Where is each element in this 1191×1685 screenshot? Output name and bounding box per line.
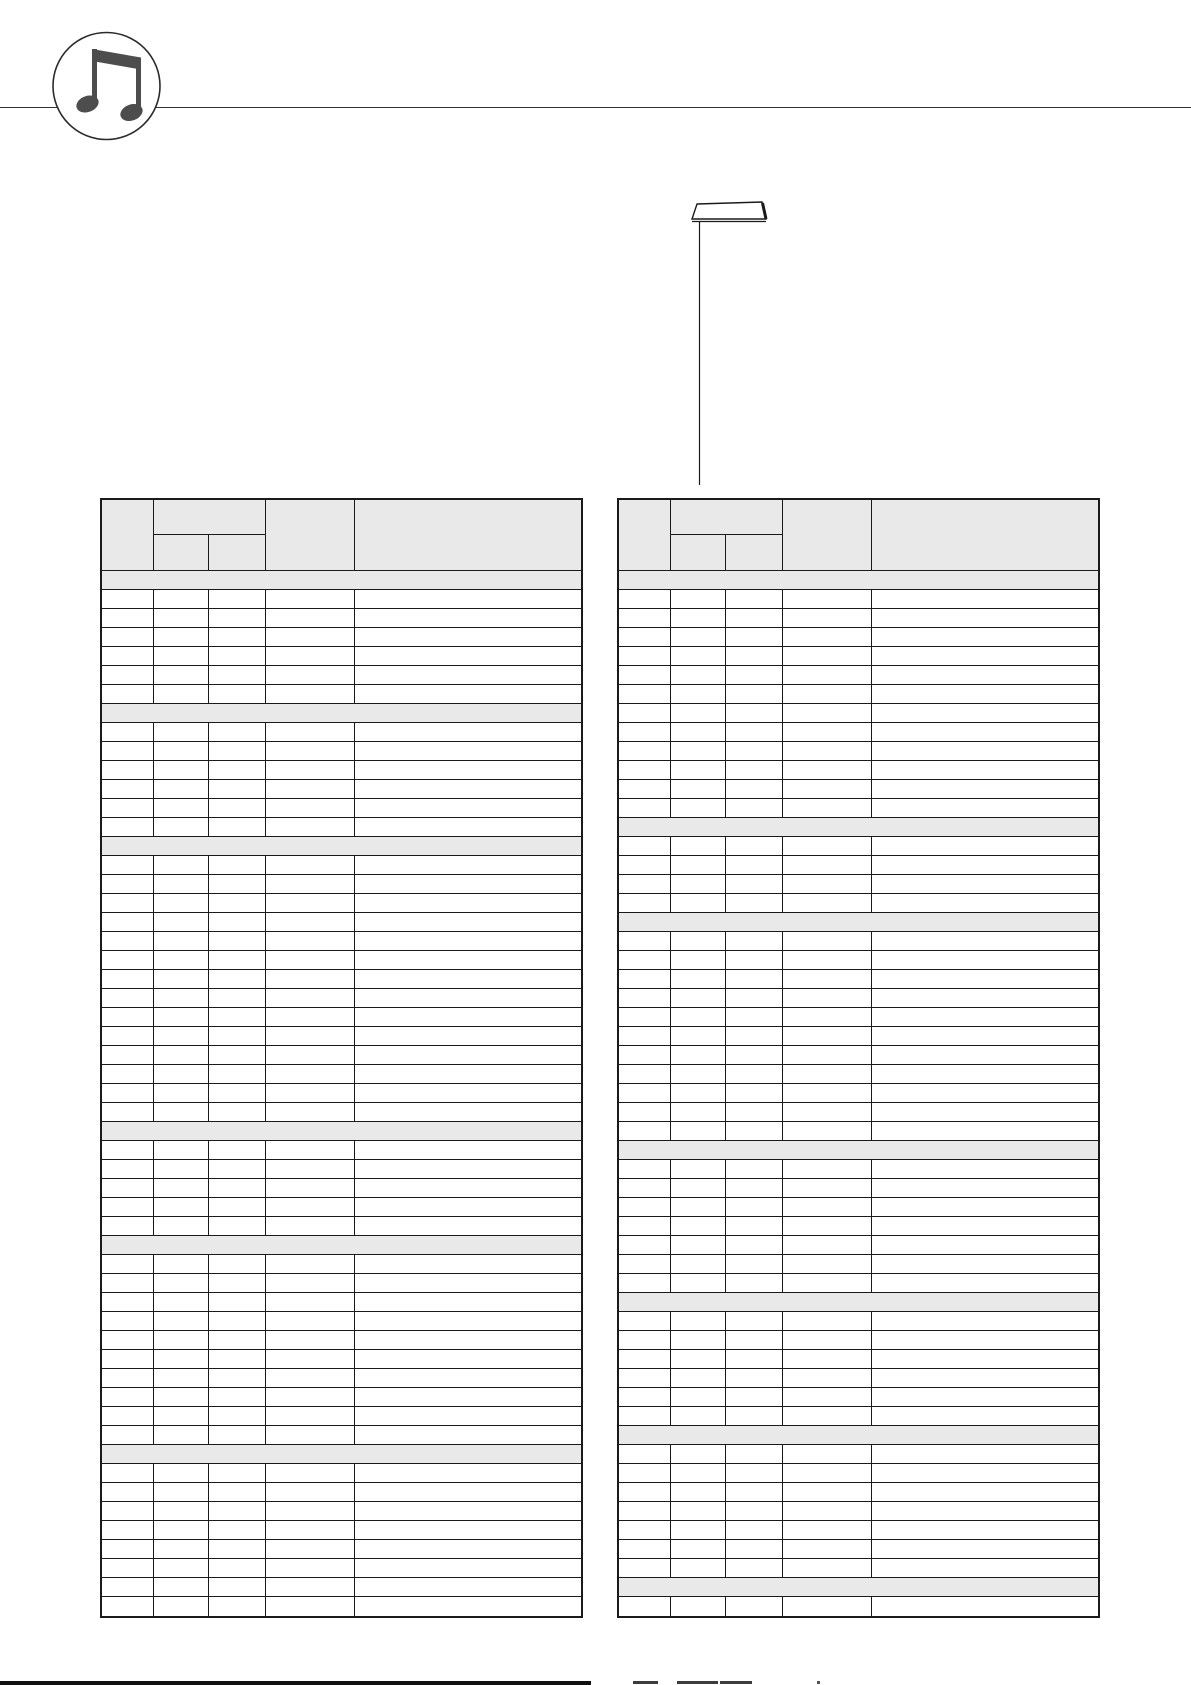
- table-cell: [783, 1559, 872, 1577]
- table-cell: [619, 799, 671, 817]
- table-cell: [209, 1103, 266, 1121]
- table-row: [619, 1388, 1098, 1407]
- table-cell: [266, 951, 355, 969]
- table-cell: [102, 1426, 154, 1444]
- table-cell: [266, 1312, 355, 1330]
- section-header-row: [619, 913, 1098, 932]
- logo-circle: [53, 33, 160, 140]
- table-cell: [671, 761, 726, 779]
- table-cell: [619, 1369, 671, 1387]
- table-cell: [671, 1255, 726, 1273]
- table-cell: [154, 742, 209, 760]
- table-cell: [266, 875, 355, 893]
- table-cell: [872, 1179, 1098, 1197]
- table-cell: [102, 1350, 154, 1368]
- table-cell: [726, 780, 783, 798]
- table-cell: [783, 1217, 872, 1235]
- table-row: [102, 1483, 581, 1502]
- table-cell: [355, 1483, 581, 1501]
- table-row: [102, 647, 581, 666]
- table-row: [102, 1540, 581, 1559]
- table-cell: [783, 590, 872, 608]
- table-row: [619, 856, 1098, 875]
- table-cell: [783, 1597, 872, 1616]
- table-cell: [671, 1331, 726, 1349]
- table-cell: [671, 666, 726, 684]
- table-cell: [102, 1084, 154, 1102]
- table-cell: [102, 761, 154, 779]
- table-row: [619, 1331, 1098, 1350]
- table-row: [102, 1312, 581, 1331]
- table-cell: [671, 647, 726, 665]
- table-cell: [154, 1293, 209, 1311]
- table-cell: [619, 1521, 671, 1539]
- header-subcell: [154, 535, 209, 570]
- table-cell: [355, 1597, 581, 1616]
- table-cell: [619, 704, 671, 722]
- section-header-row: [619, 1141, 1098, 1160]
- table-cell: [619, 628, 671, 646]
- table-cell: [102, 970, 154, 988]
- table-cell: [209, 913, 266, 931]
- table-cell: [726, 1540, 783, 1558]
- table-cell: [726, 1084, 783, 1102]
- table-cell: [619, 1483, 671, 1501]
- table-cell: [619, 1350, 671, 1368]
- table-cell: [783, 1369, 872, 1387]
- table-cell: [266, 1141, 355, 1159]
- table-row: [102, 1597, 581, 1616]
- table-cell: [355, 1293, 581, 1311]
- table-cell: [154, 1331, 209, 1349]
- table-cell: [783, 1483, 872, 1501]
- table-cell: [266, 780, 355, 798]
- table-cell: [872, 742, 1098, 760]
- table-cell: [266, 1521, 355, 1539]
- table-row: [102, 1502, 581, 1521]
- table-cell: [619, 742, 671, 760]
- table-cell: [872, 666, 1098, 684]
- table-cell: [355, 894, 581, 912]
- table-cell: [619, 932, 671, 950]
- table-cell: [266, 761, 355, 779]
- table-cell: [619, 1407, 671, 1425]
- table-cell: [154, 1502, 209, 1520]
- table-cell: [872, 932, 1098, 950]
- table-cell: [209, 989, 266, 1007]
- table-cell: [266, 799, 355, 817]
- table-cell: [619, 590, 671, 608]
- table-cell: [355, 647, 581, 665]
- table-cell: [783, 1312, 872, 1330]
- table-cell: [102, 932, 154, 950]
- table-cell: [266, 609, 355, 627]
- table-cell: [783, 1464, 872, 1482]
- table-cell: [726, 1597, 783, 1616]
- voice-list-table-right: [617, 498, 1100, 1618]
- table-cell: [872, 723, 1098, 741]
- table-cell: [209, 1312, 266, 1330]
- table-cell: [355, 1350, 581, 1368]
- table-cell: [783, 666, 872, 684]
- header-cell: [619, 500, 671, 570]
- table-cell: [726, 1502, 783, 1520]
- table-cell: [872, 951, 1098, 969]
- table-cell: [619, 1122, 671, 1140]
- table-cell: [671, 875, 726, 893]
- table-cell: [355, 913, 581, 931]
- table-row: [102, 913, 581, 932]
- table-row: [102, 1084, 581, 1103]
- table-cell: [619, 1179, 671, 1197]
- table-cell: [209, 1388, 266, 1406]
- table-cell: [619, 970, 671, 988]
- table-cell: [783, 1331, 872, 1349]
- header-group-top-cell: [671, 500, 782, 535]
- table-row: [102, 1350, 581, 1369]
- table-cell: [726, 628, 783, 646]
- table-cell: [726, 837, 783, 855]
- table-cell: [102, 1331, 154, 1349]
- table-cell: [671, 1179, 726, 1197]
- table-cell: [154, 1198, 209, 1216]
- table-cell: [619, 1388, 671, 1406]
- table-cell: [619, 1103, 671, 1121]
- table-cell: [872, 799, 1098, 817]
- table-cell: [872, 1274, 1098, 1292]
- table-cell: [266, 1483, 355, 1501]
- table-cell: [726, 1046, 783, 1064]
- table-cell: [726, 1483, 783, 1501]
- table-cell: [726, 1350, 783, 1368]
- table-cell: [266, 932, 355, 950]
- table-cell: [726, 970, 783, 988]
- table-cell: [619, 761, 671, 779]
- table-row: [102, 1141, 581, 1160]
- table-cell: [102, 609, 154, 627]
- table-cell: [671, 1597, 726, 1616]
- table-cell: [619, 1236, 671, 1254]
- table-row: [102, 970, 581, 989]
- section-header-row: [619, 571, 1098, 590]
- header-subcell: [726, 535, 782, 570]
- table-cell: [209, 1559, 266, 1577]
- table-cell: [355, 1578, 581, 1596]
- table-row: [619, 1464, 1098, 1483]
- table-cell: [209, 951, 266, 969]
- table-cell: [355, 818, 581, 836]
- table-cell: [154, 1426, 209, 1444]
- table-cell: [619, 1255, 671, 1273]
- table-cell: [154, 1027, 209, 1045]
- table-cell: [355, 1141, 581, 1159]
- table-cell: [872, 1217, 1098, 1235]
- section-header-row: [619, 1426, 1098, 1445]
- table-cell: [783, 837, 872, 855]
- table-cell: [355, 1103, 581, 1121]
- table-cell: [154, 590, 209, 608]
- table-cell: [209, 647, 266, 665]
- table-cell: [783, 1027, 872, 1045]
- table-cell: [671, 1217, 726, 1235]
- table-cell: [154, 1350, 209, 1368]
- table-cell: [671, 894, 726, 912]
- table-cell: [154, 647, 209, 665]
- table-cell: [783, 685, 872, 703]
- table-cell: [266, 1502, 355, 1520]
- table-row: [619, 1502, 1098, 1521]
- table-cell: [872, 1502, 1098, 1520]
- table-cell: [872, 894, 1098, 912]
- table-cell: [726, 1179, 783, 1197]
- table-cell: [102, 1597, 154, 1616]
- table-cell: [355, 1008, 581, 1026]
- table-cell: [726, 1559, 783, 1577]
- table-row: [102, 932, 581, 951]
- table-cell: [783, 1255, 872, 1273]
- table-cell: [154, 1578, 209, 1596]
- table-cell: [102, 1483, 154, 1501]
- table-row: [619, 1236, 1098, 1255]
- table-row: [619, 685, 1098, 704]
- table-cell: [266, 1217, 355, 1235]
- table-cell: [671, 628, 726, 646]
- table-cell: [266, 1578, 355, 1596]
- table-cell: [783, 647, 872, 665]
- table-cell: [783, 1521, 872, 1539]
- table-cell: [266, 970, 355, 988]
- footer-rule-bar: [0, 1681, 591, 1685]
- header-group-cell: [154, 500, 266, 570]
- table-cell: [102, 913, 154, 931]
- table-cell: [783, 1122, 872, 1140]
- table-cell: [154, 1369, 209, 1387]
- table-cell: [872, 970, 1098, 988]
- table-cell: [872, 1331, 1098, 1349]
- table-cell: [671, 1198, 726, 1216]
- table-cell: [266, 590, 355, 608]
- table-row: [619, 989, 1098, 1008]
- table-cell: [726, 742, 783, 760]
- table-row: [619, 1597, 1098, 1616]
- table-cell: [209, 1578, 266, 1596]
- table-cell: [619, 875, 671, 893]
- table-cell: [726, 1122, 783, 1140]
- table-cell: [102, 818, 154, 836]
- table-cell: [209, 1274, 266, 1292]
- table-cell: [209, 761, 266, 779]
- table-cell: [671, 1559, 726, 1577]
- table-cell: [102, 1502, 154, 1520]
- table-cell: [266, 1046, 355, 1064]
- table-cell: [872, 1255, 1098, 1273]
- table-cell: [102, 1255, 154, 1273]
- table-cell: [209, 1483, 266, 1501]
- table-cell: [355, 1464, 581, 1482]
- table-cell: [671, 932, 726, 950]
- table-row: [619, 894, 1098, 913]
- table-row: [102, 742, 581, 761]
- key-callout: [685, 195, 775, 495]
- table-cell: [266, 1464, 355, 1482]
- table-cell: [783, 723, 872, 741]
- table-cell: [783, 1103, 872, 1121]
- table-cell: [102, 1464, 154, 1482]
- table-cell: [209, 1065, 266, 1083]
- table-cell: [872, 1103, 1098, 1121]
- table-row: [619, 1407, 1098, 1426]
- table-cell: [726, 1464, 783, 1482]
- table-cell: [783, 780, 872, 798]
- table-row: [102, 1027, 581, 1046]
- table-cell: [872, 1312, 1098, 1330]
- table-cell: [102, 951, 154, 969]
- table-row: [102, 609, 581, 628]
- header-subcell: [671, 535, 726, 570]
- table-cell: [783, 1179, 872, 1197]
- table-cell: [102, 1198, 154, 1216]
- table-cell: [209, 780, 266, 798]
- table-row: [619, 666, 1098, 685]
- table-cell: [209, 1521, 266, 1539]
- table-cell: [154, 1274, 209, 1292]
- table-row: [619, 1084, 1098, 1103]
- table-cell: [266, 856, 355, 874]
- table-cell: [355, 1369, 581, 1387]
- table-cell: [154, 875, 209, 893]
- table-cell: [209, 1350, 266, 1368]
- table-cell: [619, 1445, 671, 1463]
- table-cell: [355, 799, 581, 817]
- table-cell: [154, 1559, 209, 1577]
- table-cell: [872, 780, 1098, 798]
- header-cell: [266, 500, 355, 570]
- table-cell: [726, 951, 783, 969]
- table-cell: [783, 1407, 872, 1425]
- footer-text-fragment: [817, 1681, 820, 1684]
- table-cell: [619, 1597, 671, 1616]
- table-cell: [102, 1046, 154, 1064]
- table-cell: [102, 1388, 154, 1406]
- table-cell: [671, 742, 726, 760]
- table-cell: [671, 685, 726, 703]
- table-cell: [209, 1046, 266, 1064]
- table-cell: [266, 989, 355, 1007]
- table-cell: [266, 1388, 355, 1406]
- table-cell: [154, 628, 209, 646]
- table-row: [619, 647, 1098, 666]
- table-cell: [671, 723, 726, 741]
- table-cell: [209, 1198, 266, 1216]
- table-cell: [209, 609, 266, 627]
- table-cell: [355, 1065, 581, 1083]
- table-row: [619, 1160, 1098, 1179]
- table-row: [102, 1388, 581, 1407]
- table-row: [619, 1122, 1098, 1141]
- table-row: [102, 799, 581, 818]
- table-cell: [872, 1559, 1098, 1577]
- table-cell: [355, 742, 581, 760]
- table-row: [102, 628, 581, 647]
- table-cell: [266, 666, 355, 684]
- table-cell: [783, 875, 872, 893]
- table-cell: [726, 1369, 783, 1387]
- table-cell: [355, 609, 581, 627]
- table-row: [102, 1578, 581, 1597]
- table-cell: [671, 780, 726, 798]
- table-cell: [154, 799, 209, 817]
- table-row: [102, 1426, 581, 1445]
- table-row: [619, 799, 1098, 818]
- table-cell: [355, 1331, 581, 1349]
- table-cell: [783, 1540, 872, 1558]
- table-cell: [266, 1084, 355, 1102]
- table-cell: [209, 1540, 266, 1558]
- table-cell: [671, 704, 726, 722]
- table-cell: [209, 1597, 266, 1616]
- section-header-row: [102, 704, 581, 723]
- music-note-logo: [50, 30, 165, 145]
- table-cell: [619, 856, 671, 874]
- table-cell: [102, 875, 154, 893]
- table-cell: [619, 1502, 671, 1520]
- section-header-row: [619, 1293, 1098, 1312]
- table-cell: [726, 1331, 783, 1349]
- table-cell: [872, 685, 1098, 703]
- table-cell: [783, 1046, 872, 1064]
- table-cell: [154, 780, 209, 798]
- table-cell: [872, 1046, 1098, 1064]
- table-cell: [671, 856, 726, 874]
- table-cell: [355, 1217, 581, 1235]
- table-cell: [102, 1065, 154, 1083]
- table-cell: [154, 1160, 209, 1178]
- table-cell: [619, 894, 671, 912]
- table-cell: [154, 1255, 209, 1273]
- table-cell: [619, 1217, 671, 1235]
- table-cell: [783, 1008, 872, 1026]
- section-header-row: [102, 571, 581, 590]
- table-cell: [266, 1559, 355, 1577]
- table-row: [619, 1540, 1098, 1559]
- table-cell: [671, 1008, 726, 1026]
- table-cell: [355, 1160, 581, 1178]
- table-cell: [726, 1027, 783, 1045]
- table-row: [619, 1065, 1098, 1084]
- table-cell: [783, 1502, 872, 1520]
- table-cell: [102, 1179, 154, 1197]
- table-cell: [102, 1559, 154, 1577]
- table-cell: [783, 799, 872, 817]
- table-cell: [872, 628, 1098, 646]
- table-row: [102, 590, 581, 609]
- table-cell: [355, 723, 581, 741]
- table-cell: [102, 1369, 154, 1387]
- table-cell: [726, 894, 783, 912]
- table-cell: [726, 1008, 783, 1026]
- table-cell: [783, 932, 872, 950]
- table-cell: [209, 856, 266, 874]
- table-cell: [154, 970, 209, 988]
- table-cell: [266, 1255, 355, 1273]
- table-cell: [619, 666, 671, 684]
- table-header-row: [102, 500, 581, 571]
- table-cell: [154, 1065, 209, 1083]
- table-cell: [671, 609, 726, 627]
- table-row: [619, 780, 1098, 799]
- table-cell: [102, 1141, 154, 1159]
- table-row: [619, 932, 1098, 951]
